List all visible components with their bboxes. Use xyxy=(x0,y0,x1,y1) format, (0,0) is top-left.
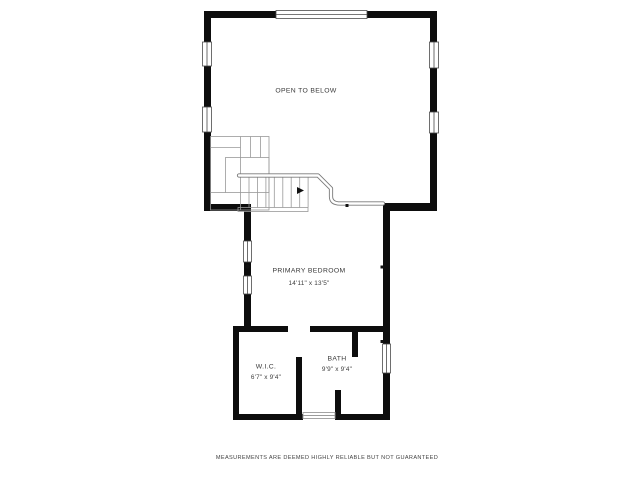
room-dims-wic: 6'7" x 9'4" xyxy=(251,375,281,381)
outlet-mark-right-lower xyxy=(381,340,384,343)
wall-bedroom-right-2 xyxy=(383,373,390,420)
window-bath-right xyxy=(383,344,391,373)
wall-upper-bottom-right xyxy=(383,203,437,211)
wall-wic-bath-divider xyxy=(296,357,302,420)
window-bedroom-left-lower xyxy=(244,276,252,294)
windows xyxy=(203,11,439,374)
room-label-wic: W.I.C. xyxy=(256,365,277,372)
wall-bath-lower xyxy=(335,390,341,420)
wall-bath-stub xyxy=(352,332,358,357)
wall-top-left xyxy=(204,11,276,18)
wall-bedroom-left-1 xyxy=(244,204,251,241)
window-left-lower xyxy=(203,107,212,132)
wall-bedroom-bottom-left xyxy=(233,326,288,332)
room-label-bath: BATH xyxy=(327,357,346,364)
wall-bedroom-right-1 xyxy=(383,203,390,344)
window-bottom-center xyxy=(303,413,335,419)
railing-end-mark xyxy=(346,204,349,207)
window-right-upper xyxy=(430,42,439,68)
room-label-primary-bedroom: PRIMARY BEDROOM xyxy=(273,269,346,276)
wall-left-3 xyxy=(204,132,211,211)
floor-plan-page: OPEN TO BELOW PRIMARY BEDROOM 14'11" x 1… xyxy=(0,0,640,480)
stair-direction-arrow xyxy=(297,187,304,194)
window-right-lower xyxy=(430,112,439,133)
window-left-upper xyxy=(203,42,212,66)
wall-bottom-right xyxy=(335,414,390,420)
wall-wic-left xyxy=(233,326,239,420)
window-bedroom-left-upper xyxy=(244,241,252,262)
stair-railing xyxy=(239,176,383,204)
wall-right-2 xyxy=(430,68,437,112)
exterior-walls xyxy=(204,11,437,420)
room-label-open-to-below: OPEN TO BELOW xyxy=(275,89,336,96)
wall-bedroom-bottom-right xyxy=(310,326,390,332)
room-dims-primary-bedroom: 14'11" x 13'5" xyxy=(289,281,330,287)
outlet-mark-right-upper xyxy=(381,266,384,269)
interior-walls xyxy=(296,332,358,420)
wall-top-right xyxy=(367,11,437,18)
wall-bottom-left xyxy=(233,414,303,420)
window-top-center xyxy=(276,11,367,19)
wall-bedroom-left-3 xyxy=(244,294,251,331)
wall-right-3 xyxy=(430,133,437,203)
wall-left-2 xyxy=(204,66,211,107)
wall-right-1 xyxy=(430,11,437,42)
wall-left-1 xyxy=(204,11,211,42)
disclaimer-text: MEASUREMENTS ARE DEEMED HIGHLY RELIABLE … xyxy=(216,456,438,462)
room-dims-bath: 9'9" x 9'4" xyxy=(322,367,352,373)
floor-plan-drawing xyxy=(0,0,640,480)
